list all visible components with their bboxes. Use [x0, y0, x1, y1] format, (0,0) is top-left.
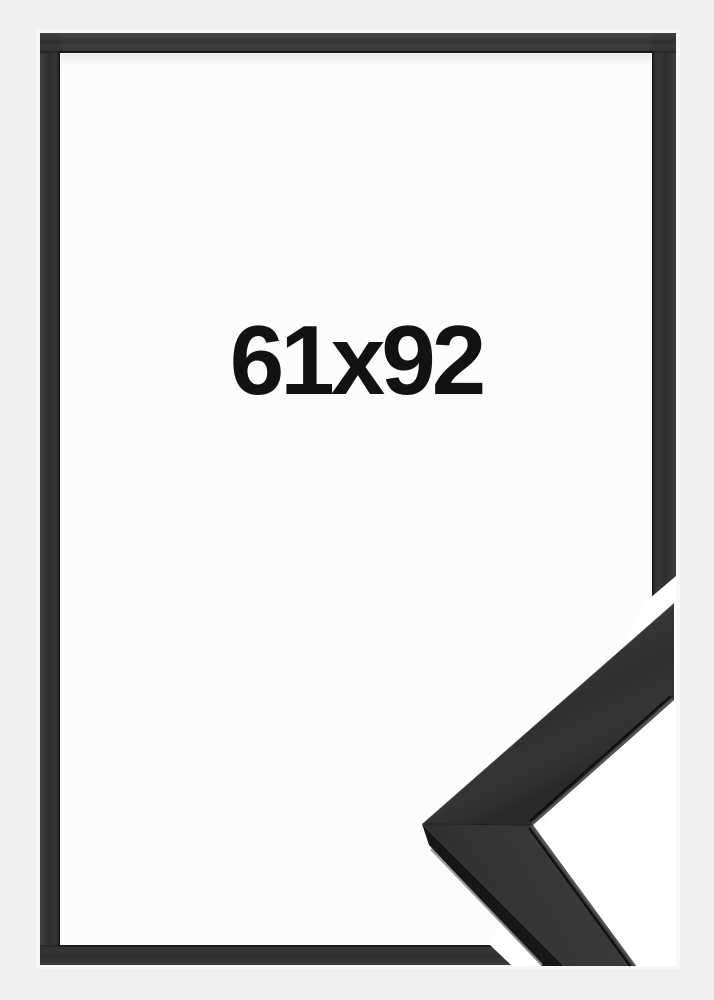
size-label: 61x92 — [230, 305, 483, 415]
frame-product-photo: 61x92 — [0, 0, 714, 1000]
frame-photo-svg: 61x92 — [0, 0, 714, 1000]
glass-top-shadow — [61, 54, 651, 66]
frame-top-band-shading — [40, 33, 676, 53]
frame-left-band-shading — [40, 53, 60, 945]
